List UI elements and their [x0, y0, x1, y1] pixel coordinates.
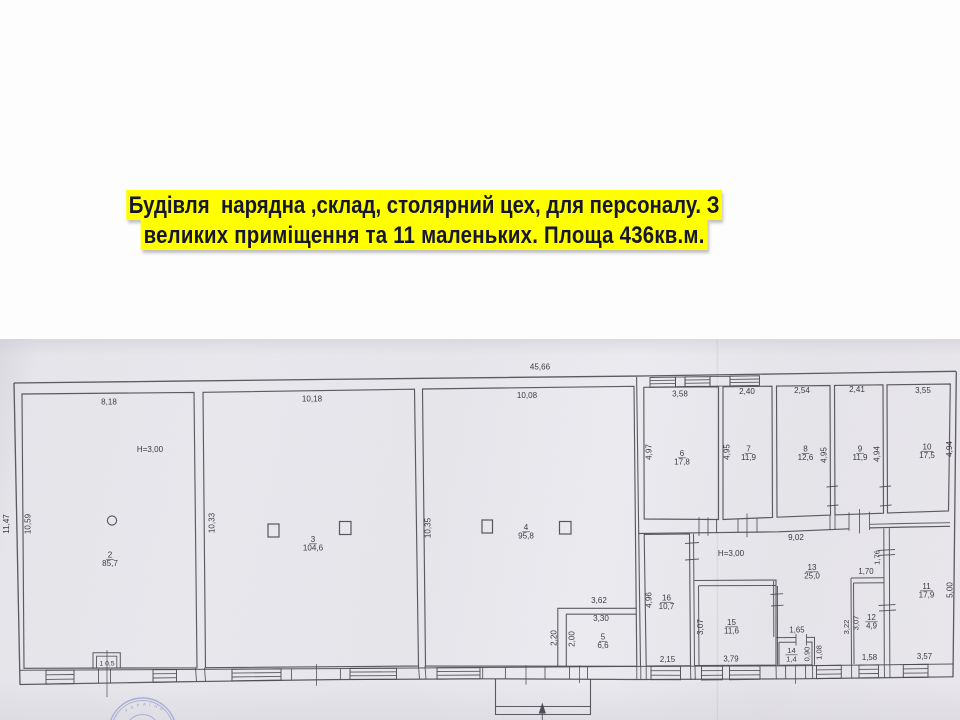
svg-text:3,79: 3,79	[723, 654, 738, 663]
svg-text:12,6: 12,6	[798, 453, 814, 462]
svg-text:3,30: 3,30	[593, 614, 609, 623]
svg-text:3,58: 3,58	[672, 390, 688, 399]
svg-text:4,9: 4,9	[866, 621, 877, 630]
svg-text:104,6: 104,6	[303, 543, 324, 552]
svg-text:3,55: 3,55	[915, 386, 931, 395]
svg-text:45,66: 45,66	[530, 363, 551, 372]
svg-text:85,7: 85,7	[102, 559, 118, 568]
svg-text:4,94: 4,94	[945, 441, 954, 457]
svg-text:1,70: 1,70	[858, 567, 874, 576]
svg-text:2,41: 2,41	[849, 385, 865, 394]
svg-text:8,18: 8,18	[101, 398, 117, 407]
svg-text:H=3,00: H=3,00	[137, 445, 164, 454]
svg-text:1,08: 1,08	[815, 645, 824, 660]
svg-text:17,5: 17,5	[919, 451, 935, 460]
svg-text:11,9: 11,9	[852, 453, 868, 462]
svg-text:4,94: 4,94	[873, 446, 882, 462]
svg-text:6,6: 6,6	[597, 641, 609, 650]
svg-text:2,00: 2,00	[568, 631, 577, 647]
svg-text:3,57: 3,57	[917, 652, 932, 661]
svg-text:2,15: 2,15	[660, 655, 676, 664]
svg-text:1,4: 1,4	[786, 654, 797, 663]
svg-text:0,90: 0,90	[803, 647, 812, 662]
svg-text:1,58: 1,58	[862, 653, 877, 662]
svg-text:9,02: 9,02	[788, 533, 804, 542]
svg-text:1,65: 1,65	[789, 625, 805, 634]
svg-text:2,40: 2,40	[739, 387, 755, 396]
svg-text:3,07: 3,07	[852, 616, 861, 631]
svg-text:10,08: 10,08	[517, 391, 538, 400]
svg-text:17,9: 17,9	[919, 590, 935, 599]
svg-text:4,97: 4,97	[645, 444, 654, 460]
svg-text:10,33: 10,33	[208, 512, 217, 533]
svg-text:11,47: 11,47	[2, 514, 11, 534]
svg-text:1,76: 1,76	[873, 550, 882, 565]
svg-text:11,9: 11,9	[741, 453, 757, 462]
svg-text:4,95: 4,95	[820, 447, 829, 463]
svg-text:10,35: 10,35	[424, 517, 433, 538]
svg-text:2,54: 2,54	[794, 386, 810, 395]
svg-text:25,0: 25,0	[804, 571, 820, 580]
svg-text:2,20: 2,20	[550, 630, 559, 646]
svg-text:95,8: 95,8	[518, 531, 534, 540]
svg-text:3,07: 3,07	[696, 619, 705, 635]
svg-text:5,00: 5,00	[946, 582, 955, 598]
svg-text:4,96: 4,96	[645, 592, 654, 608]
svg-text:10,18: 10,18	[302, 395, 323, 404]
svg-text:17,8: 17,8	[674, 457, 690, 466]
svg-text:10,7: 10,7	[659, 602, 675, 611]
svg-text:3,62: 3,62	[591, 596, 607, 605]
svg-text:4,95: 4,95	[723, 444, 732, 460]
svg-text:3,22: 3,22	[842, 620, 851, 635]
svg-text:H=3,00: H=3,00	[718, 549, 745, 558]
svg-text:11,6: 11,6	[724, 626, 740, 635]
svg-text:А: А	[143, 702, 146, 707]
svg-text:10,59: 10,59	[24, 513, 33, 534]
